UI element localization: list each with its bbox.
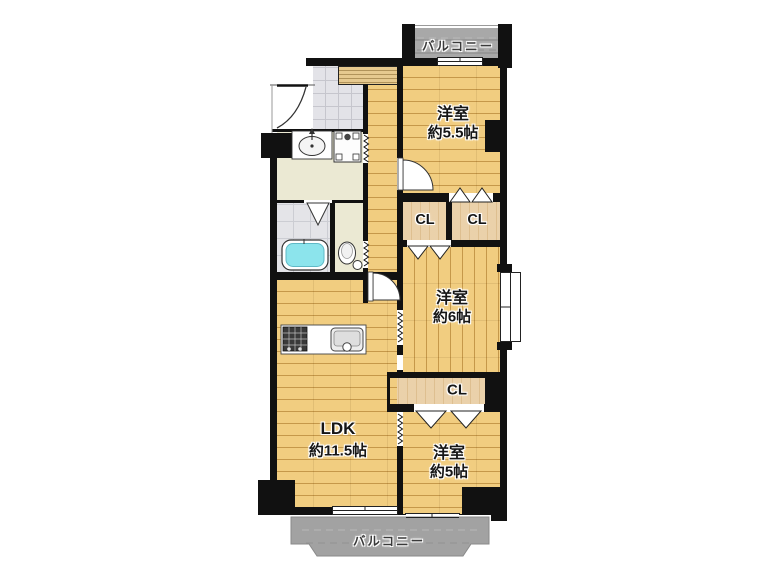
wall	[272, 129, 363, 132]
window-bedroom-a	[437, 57, 483, 66]
hallway-floor	[368, 66, 397, 280]
bedroom-b-name: 洋室	[436, 284, 468, 308]
closet-door-gap	[407, 240, 451, 247]
wall	[497, 264, 512, 272]
bedroom-a-size: 約5.5帖	[428, 122, 479, 143]
wall-pillar	[462, 487, 507, 521]
door-gap	[363, 134, 368, 163]
wall	[363, 84, 368, 303]
bay-window-bedroom-b	[500, 272, 521, 342]
wall-pillar	[402, 24, 415, 60]
wall-pillar	[485, 372, 507, 412]
wall-pillar	[485, 120, 500, 152]
wall	[387, 378, 390, 404]
bedroom-a-name: 洋室	[437, 100, 469, 124]
door-gap	[397, 158, 403, 190]
wall-pillar	[261, 133, 295, 158]
entrance-alcove	[272, 84, 313, 133]
door-gap	[304, 200, 332, 203]
closet-b-label: CL	[467, 212, 486, 228]
bedroom-b-size: 約6帖	[433, 306, 471, 327]
wall	[330, 203, 335, 272]
window-ldk	[332, 506, 398, 515]
wall	[270, 133, 277, 515]
window-bedroom-c	[405, 513, 460, 522]
bedroom-c-name: 洋室	[433, 439, 465, 463]
door-gap	[363, 241, 368, 268]
bathroom-floor	[277, 203, 330, 272]
wall	[272, 272, 403, 280]
closet-c-label: CL	[447, 382, 467, 399]
wall	[500, 58, 507, 264]
closet-a-label: CL	[415, 212, 434, 228]
ldk-size: 約11.5帖	[309, 440, 367, 461]
opening-gap	[397, 355, 403, 370]
door-gap	[397, 310, 403, 345]
wall	[497, 342, 512, 350]
floor-plan: バルコニー 洋室 約5.5帖 CL CL 洋室 約6帖 CL 洋室 約5帖 LD…	[0, 0, 780, 585]
door-gap	[397, 412, 403, 446]
ldk-floor	[277, 280, 397, 507]
ldk-name: LDK	[321, 419, 356, 439]
bedroom-c-size: 約5帖	[430, 461, 468, 482]
balcony-top-label: バルコニー	[422, 36, 494, 55]
closet-door-gap	[449, 193, 493, 202]
closet-door-gap	[414, 404, 484, 412]
balcony-bottom-label: バルコニー	[353, 531, 425, 550]
toilet-room-floor	[335, 203, 363, 272]
shoe-cabinet	[338, 66, 398, 85]
closet-c-floor	[390, 378, 485, 404]
